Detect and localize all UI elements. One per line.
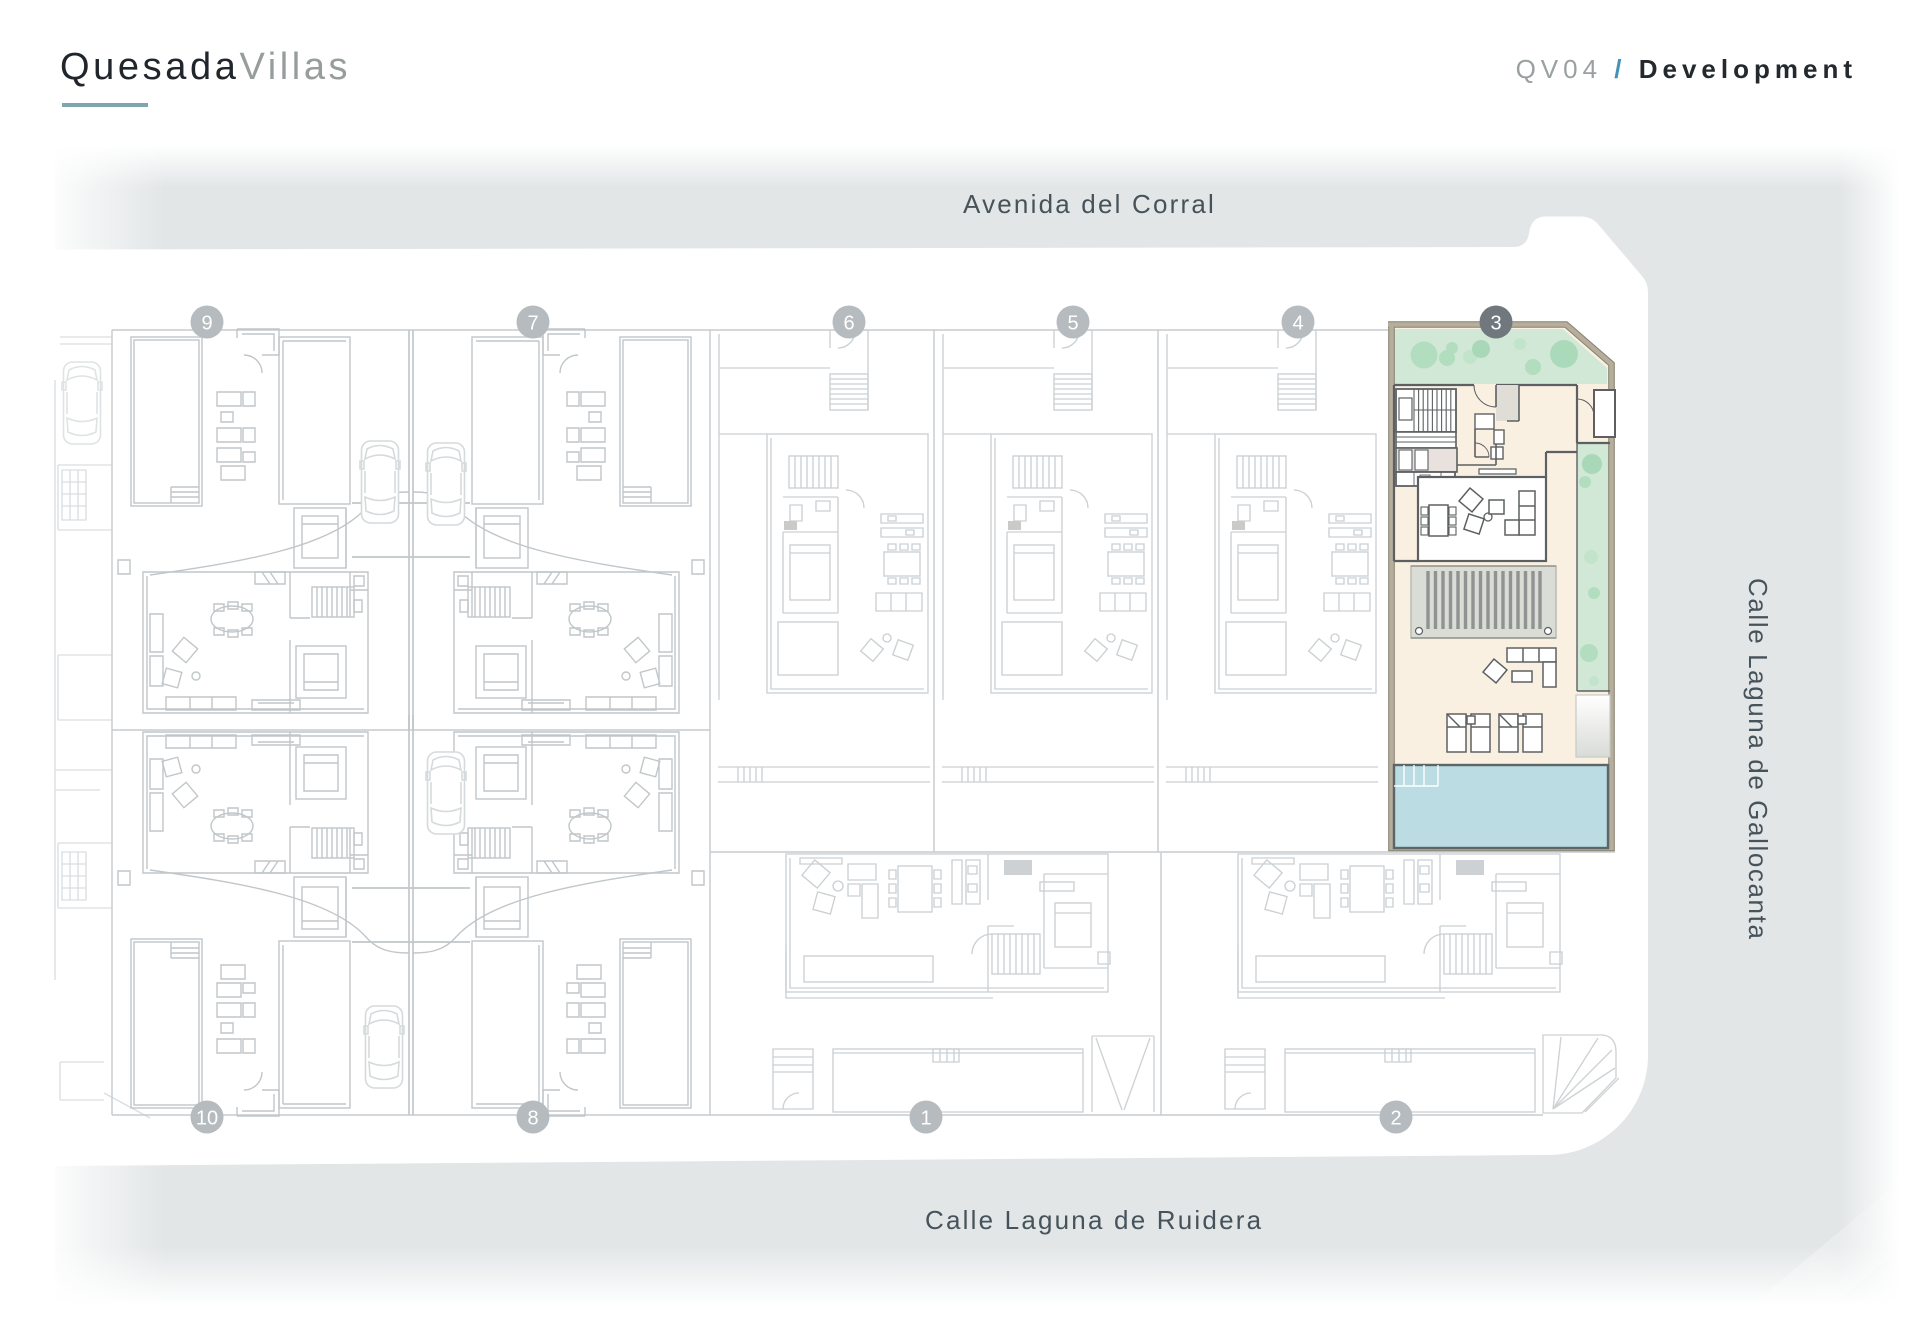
svg-text:3: 3 — [1490, 313, 1501, 335]
svg-text:10: 10 — [196, 1108, 218, 1130]
svg-text:8: 8 — [527, 1108, 538, 1130]
svg-text:4: 4 — [1292, 313, 1303, 335]
svg-text:7: 7 — [527, 313, 538, 335]
svg-text:2: 2 — [1390, 1108, 1401, 1130]
svg-text:9: 9 — [201, 313, 212, 335]
svg-text:1: 1 — [920, 1108, 931, 1130]
svg-text:6: 6 — [843, 313, 854, 335]
svg-text:5: 5 — [1067, 313, 1078, 335]
